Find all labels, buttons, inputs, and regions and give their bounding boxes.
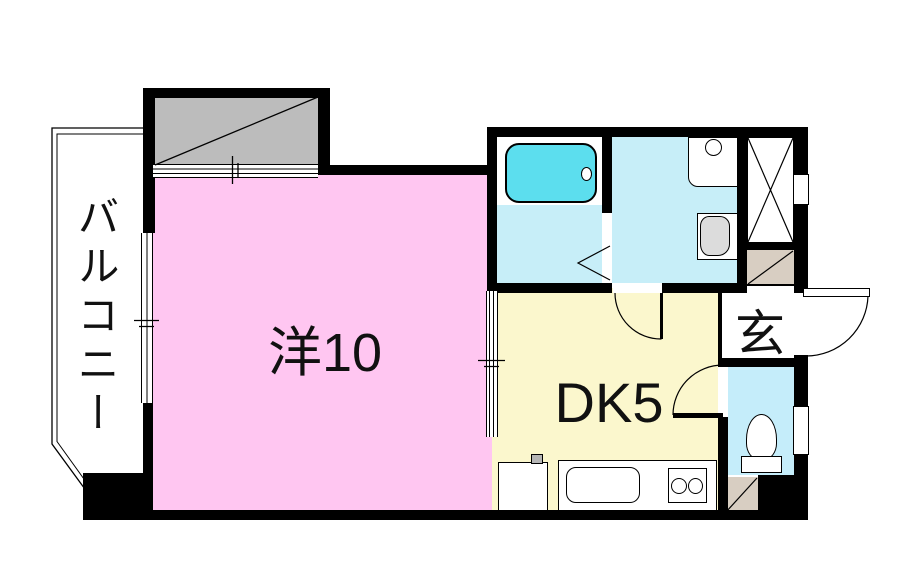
plan-lines-overlay bbox=[0, 0, 908, 586]
shoe-cabinet-x-lines bbox=[748, 138, 793, 242]
window-center-tick bbox=[478, 361, 505, 367]
entrance-label: 玄 bbox=[731, 294, 789, 366]
porch-diagonal bbox=[748, 251, 793, 284]
western-room-label: 洋10 bbox=[240, 308, 410, 387]
balcony-label: バルコニー bbox=[70, 162, 126, 472]
folding-door-symbol bbox=[578, 246, 610, 280]
dining-kitchen-label: DK5 bbox=[533, 370, 685, 435]
utility-diagonal bbox=[155, 97, 318, 165]
window-center-tick bbox=[233, 156, 239, 184]
entrance-door-arc bbox=[806, 296, 868, 356]
washroom-door-arc bbox=[615, 293, 662, 339]
sliding-door-lines bbox=[490, 291, 494, 437]
utility-window-lines bbox=[153, 169, 318, 174]
floor-plan: バルコニー 洋10 DK5 玄 bbox=[0, 0, 908, 586]
step-diagonal bbox=[726, 478, 757, 512]
